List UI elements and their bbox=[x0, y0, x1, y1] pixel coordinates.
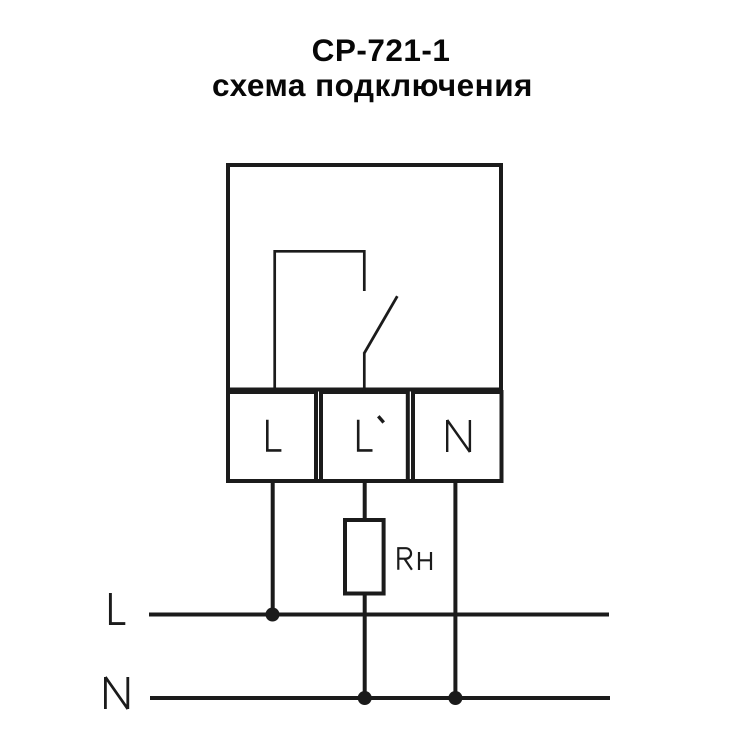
svg-text:СР-721-1: СР-721-1 bbox=[312, 32, 451, 68]
svg-text:схема подключения: схема подключения bbox=[212, 67, 533, 103]
